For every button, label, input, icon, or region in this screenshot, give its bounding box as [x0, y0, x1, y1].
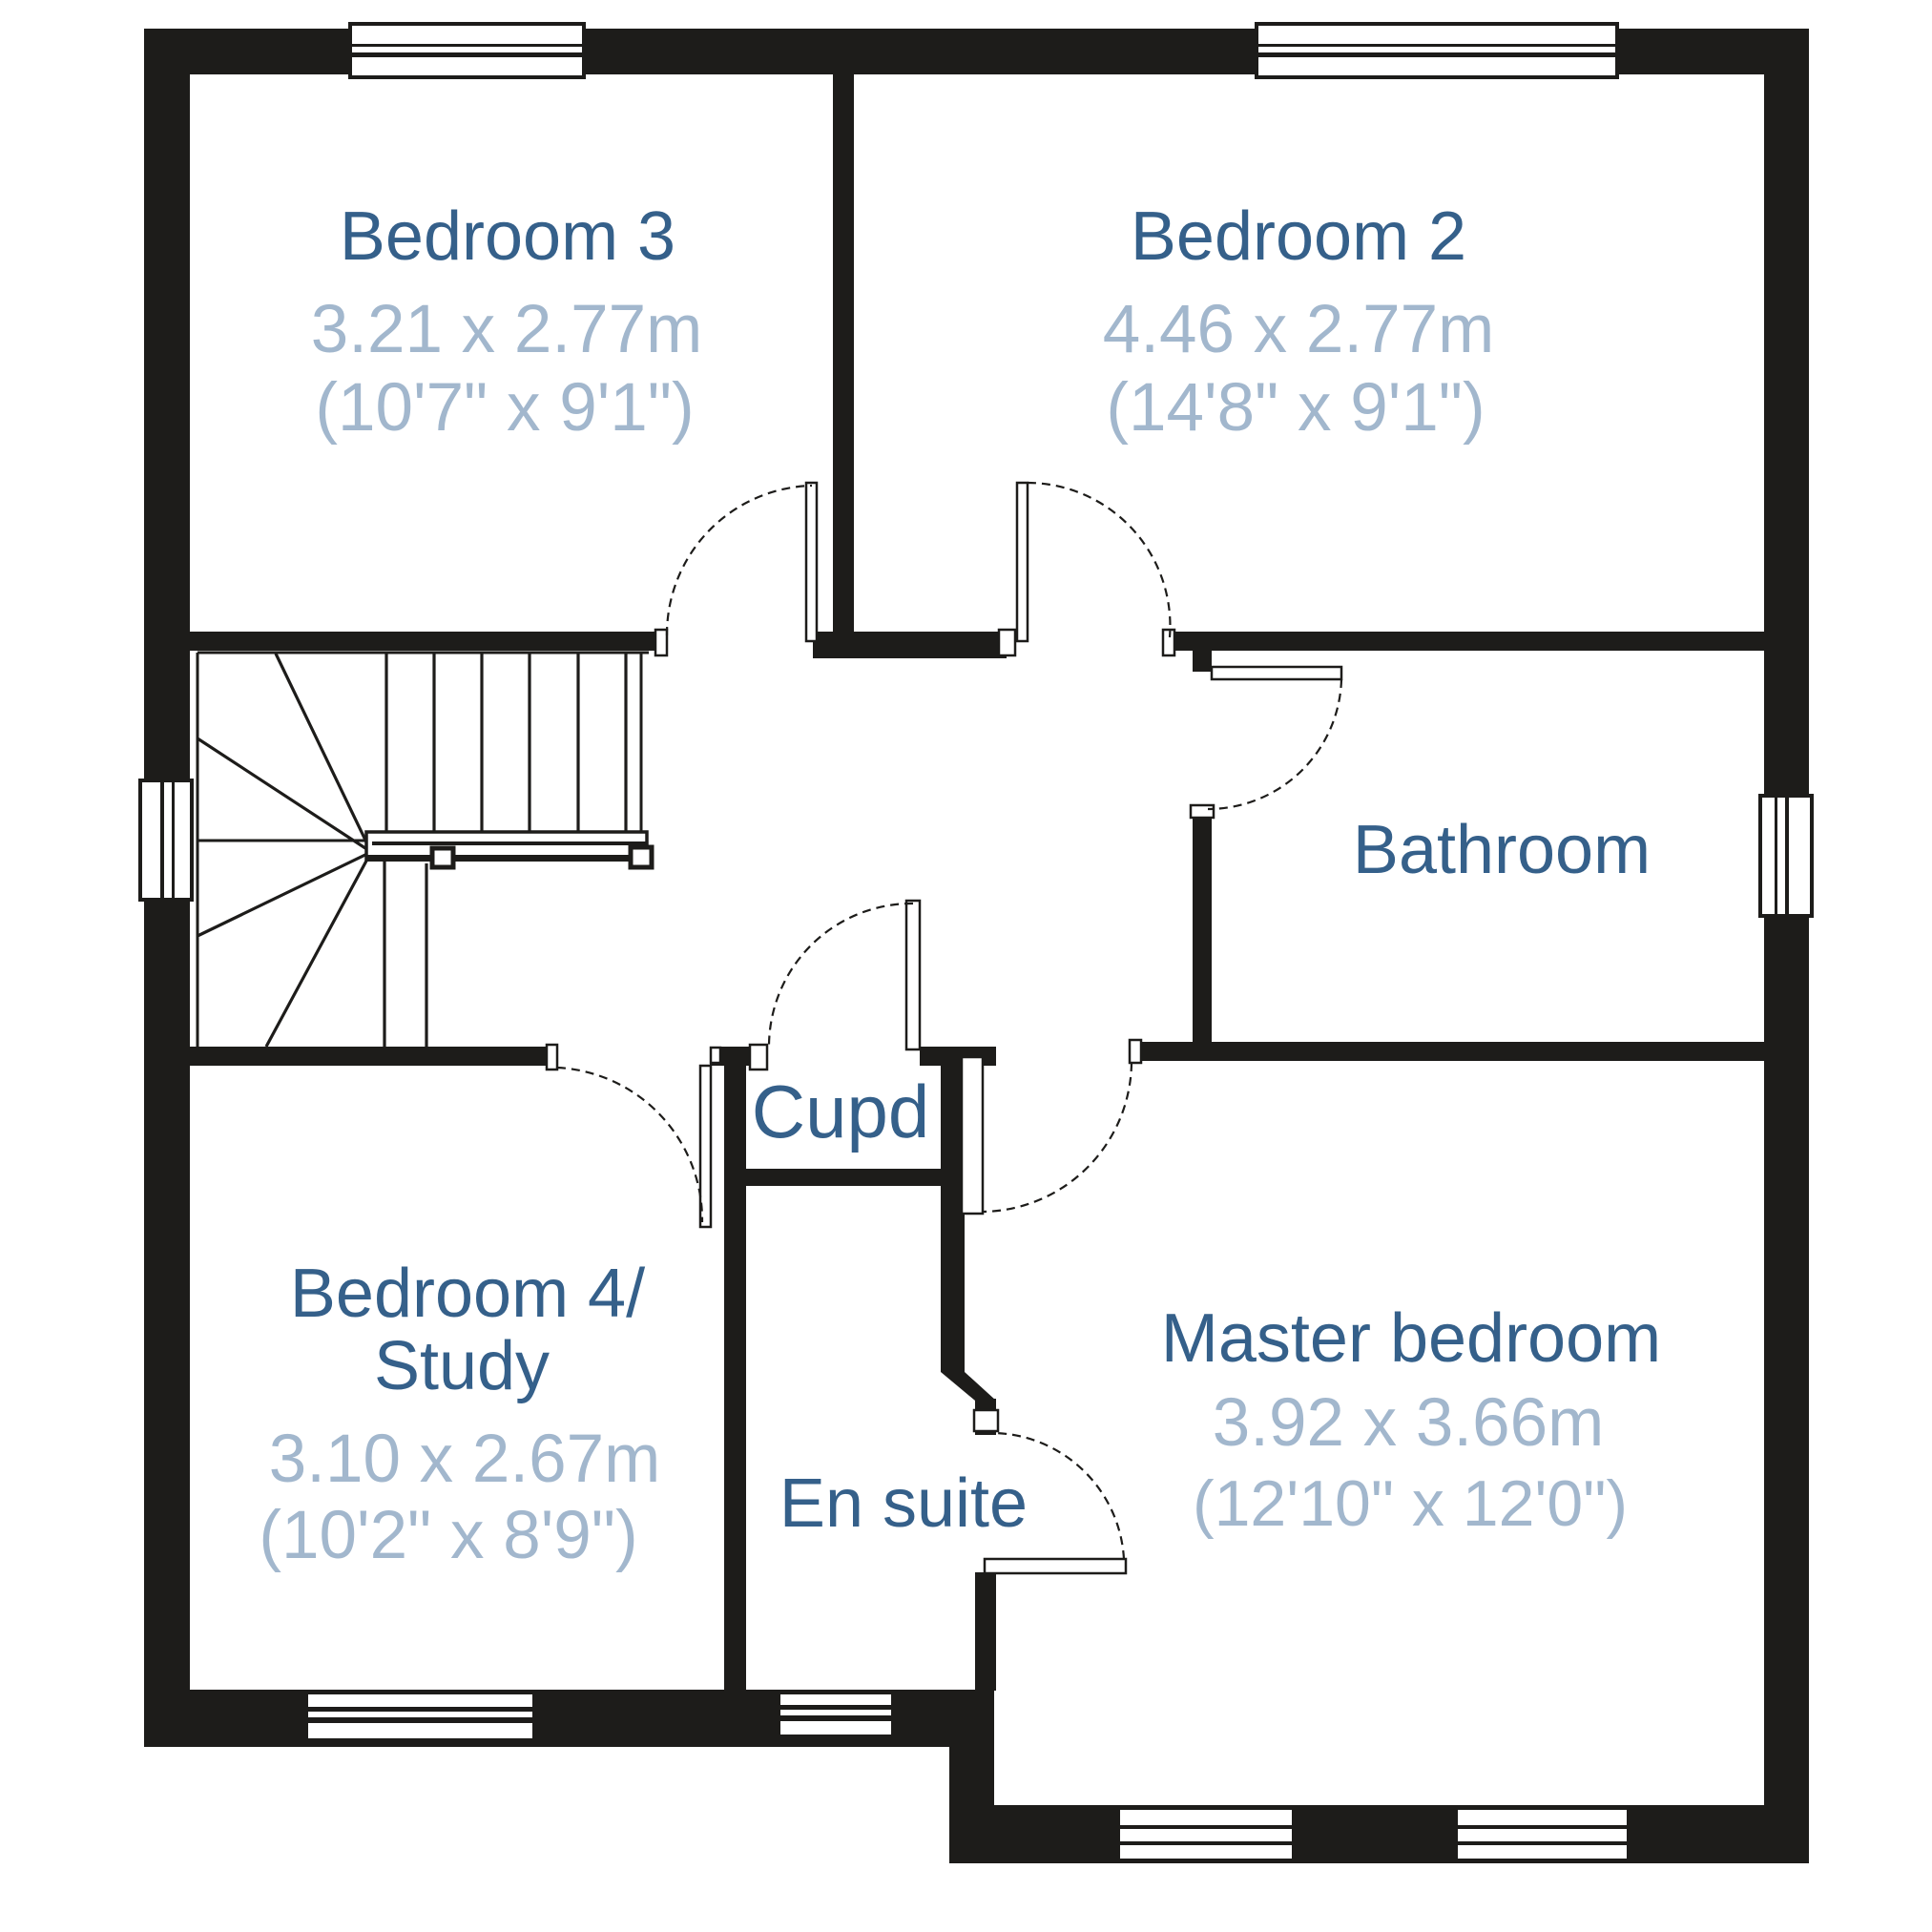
svg-text:(10'2" x 8'9"): (10'2" x 8'9")	[259, 1498, 637, 1573]
svg-text:Cupd: Cupd	[752, 1070, 929, 1153]
svg-text:Bedroom 2: Bedroom 2	[1131, 198, 1466, 275]
svg-text:(10'7" x 9'1"): (10'7" x 9'1")	[315, 370, 694, 446]
svg-text:3.10 x 2.67m: 3.10 x 2.67m	[269, 1422, 660, 1497]
svg-text:(12'10" x 12'0"): (12'10" x 12'0")	[1193, 1467, 1628, 1540]
svg-text:(14'8" x 9'1"): (14'8" x 9'1")	[1106, 370, 1485, 446]
svg-text:En suite: En suite	[779, 1465, 1028, 1542]
svg-text:Study: Study	[374, 1328, 550, 1404]
svg-text:3.92 x 3.66m: 3.92 x 3.66m	[1213, 1385, 1604, 1461]
svg-text:Bathroom: Bathroom	[1353, 812, 1651, 888]
svg-text:Bedroom 4/: Bedroom 4/	[290, 1256, 645, 1332]
svg-text:3.21 x 2.77m: 3.21 x 2.77m	[311, 292, 702, 367]
svg-text:Bedroom 3: Bedroom 3	[340, 198, 675, 275]
svg-text:Master bedroom: Master bedroom	[1161, 1300, 1661, 1377]
svg-text:4.46 x 2.77m: 4.46 x 2.77m	[1103, 292, 1494, 367]
